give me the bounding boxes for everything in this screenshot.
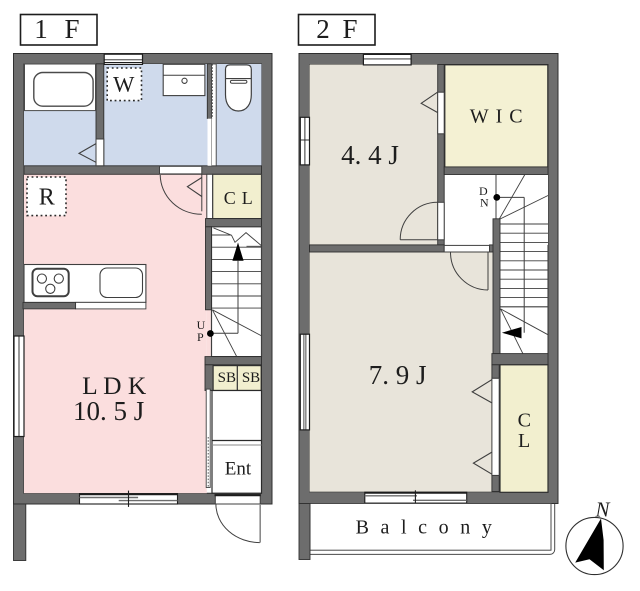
- svg-text:C: C: [518, 409, 531, 431]
- svg-text:1: 1: [34, 14, 48, 44]
- svg-text:CL: CL: [224, 188, 259, 208]
- svg-text:SB: SB: [218, 370, 236, 386]
- svg-text:2: 2: [316, 14, 330, 44]
- svg-text:WIC: WIC: [470, 106, 530, 128]
- svg-text:Ent: Ent: [225, 459, 252, 480]
- svg-text:N: N: [480, 195, 489, 209]
- svg-text:SB: SB: [242, 370, 260, 386]
- svg-text:F: F: [342, 14, 357, 44]
- svg-text:L: L: [518, 430, 530, 452]
- svg-text:P: P: [197, 330, 204, 344]
- svg-text:Balcony: Balcony: [356, 517, 504, 539]
- svg-text:7. 9 J: 7. 9 J: [369, 360, 427, 390]
- svg-text:W: W: [113, 72, 135, 97]
- svg-text:4. 4 J: 4. 4 J: [341, 140, 399, 170]
- svg-text:F: F: [64, 14, 79, 44]
- svg-text:R: R: [39, 184, 55, 210]
- svg-text:N: N: [594, 498, 610, 522]
- svg-text:10. 5 J: 10. 5 J: [73, 396, 144, 426]
